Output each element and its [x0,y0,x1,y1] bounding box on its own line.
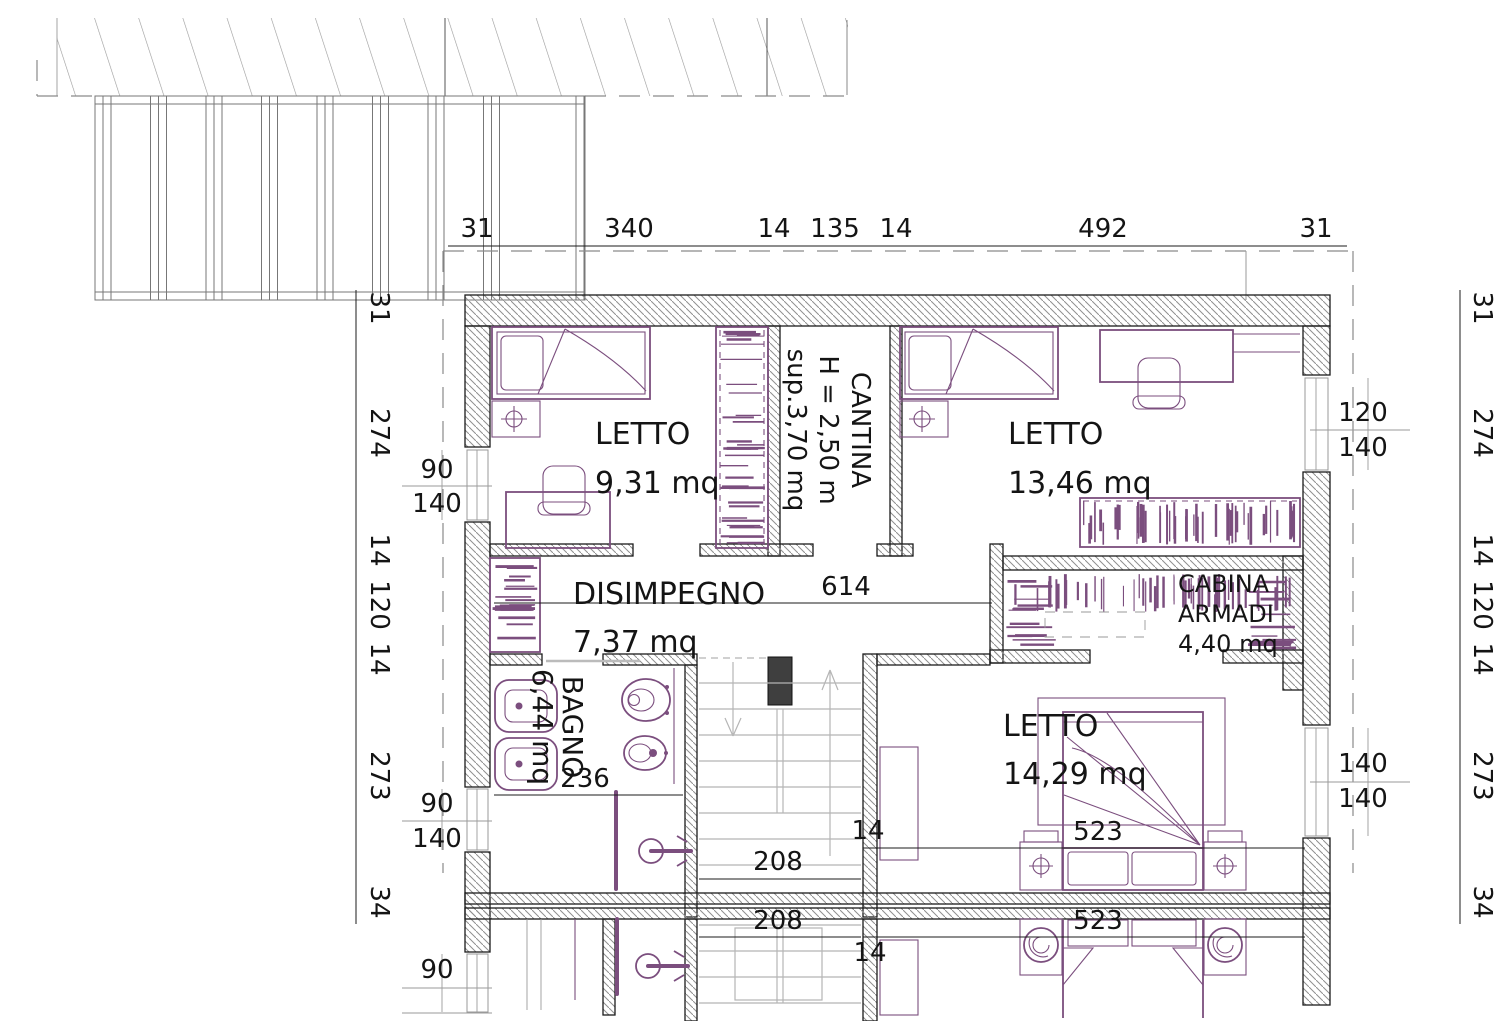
dim-label: 120 [364,580,394,630]
wardrobe-1 [716,327,768,548]
wardrobe-2 [1080,498,1300,547]
stair-wall-stub [768,657,792,705]
nightstand-right [1204,831,1246,890]
window-label: 140 [412,489,462,519]
room-area-bagno: 6,44 mq [526,669,559,785]
dim-label-stair-width: 208 [753,847,803,877]
dim-label: 34 [364,885,394,918]
staircase [699,658,861,1003]
window-label: 90 [420,789,453,819]
deck-planks [103,96,584,300]
dim-label: 492 [1078,214,1128,244]
nightstand-left [1020,831,1062,890]
dim-label: 273 [1467,751,1497,801]
dim-label-hall-width: 614 [821,572,871,602]
dim-label: 14 [757,214,790,244]
dim-label-lower-letto: 523 [1073,906,1123,936]
room-area-letto3: 14,29 mq [1003,757,1147,792]
single-bed-2 [900,327,1058,399]
room-label-cabina-2: ARMADI [1178,600,1274,628]
desk-2 [1100,330,1300,382]
dim-label: 14 [364,533,394,566]
lower-nightstand-left [1020,919,1062,975]
dim-label-stair-wall: 14 [851,816,884,846]
room-height-cantina: H = 2,50 m [813,355,843,504]
window-label: 140 [1338,784,1388,814]
dim-label: 274 [1467,408,1497,458]
lower-nightstand-right [1204,919,1246,975]
chair-2 [1133,358,1185,409]
chair-1 [538,466,590,515]
dim-label: 31 [460,214,493,244]
window-label: 120 [1338,398,1388,428]
lower-floor-fragment [527,919,1246,1018]
dim-label: 274 [364,408,394,458]
room-label-cantina: CANTINA [845,372,875,488]
dim-label: 31 [1299,214,1332,244]
dim-label-lower-stair: 208 [753,906,803,936]
shower [616,792,691,889]
floor-plan-page: 31 340 14 135 14 492 31 31 274 14 120 14… [0,0,1501,1021]
bidet [624,736,668,770]
dim-label: 120 [1467,580,1497,630]
ceiling-light-symbol-1 [492,401,540,437]
stair-treads-upper [699,683,861,865]
dim-label: 31 [1467,291,1497,324]
dim-label: 14 [364,642,394,675]
floor-slab-band-upper [465,893,1330,904]
dim-label: 340 [604,214,654,244]
room-label-letto2: LETTO [1008,417,1103,452]
room-label-letto1: LETTO [595,417,690,452]
room-label-letto3: LETTO [1003,709,1098,744]
dim-label-lower-wall: 14 [853,938,886,968]
dim-label: 14 [879,214,912,244]
dim-label: 34 [1467,885,1497,918]
toilet [622,679,670,721]
window-label: 90 [420,455,453,485]
dim-label-letto3-width: 523 [1073,817,1123,847]
terrace-deck [95,96,585,300]
window-right-lower [1305,728,1410,836]
window-label: 140 [412,824,462,854]
room-label-bagno: BAGNO [556,676,589,779]
roof-overhang-hatch [37,18,848,96]
radiator [880,747,918,860]
dim-label: 14 [1467,642,1497,675]
room-area-letto1: 9,31 mq [595,466,720,501]
dim-label: 14 [1467,533,1497,566]
room-surface-cantina: sup.3,70 mq [781,349,811,512]
ceiling-light-symbol-2 [900,401,948,437]
dim-label: 273 [364,751,394,801]
floor-plan-svg: 31 340 14 135 14 492 31 31 274 14 120 14… [0,0,1501,1021]
dim-label: 135 [810,214,860,244]
hall-closet [490,558,540,652]
room-area-cabina: 4,40 mq [1178,630,1278,658]
dim-label: 31 [364,291,394,324]
floor-slab-band-lower [465,908,1330,919]
stair-down-arrow [725,662,741,736]
window-label: 140 [1338,433,1388,463]
single-bed-1 [492,327,650,399]
room-area-disimpegno: 7,37 mq [573,625,698,660]
room-label-cabina-1: CABINA [1178,570,1270,598]
room-area-letto2: 13,46 mq [1008,466,1152,501]
window-label: 140 [1338,749,1388,779]
stair-up-arrow [822,670,838,856]
window-label: 90 [420,955,453,985]
room-label-disimpegno: DISIMPEGNO [573,577,765,612]
